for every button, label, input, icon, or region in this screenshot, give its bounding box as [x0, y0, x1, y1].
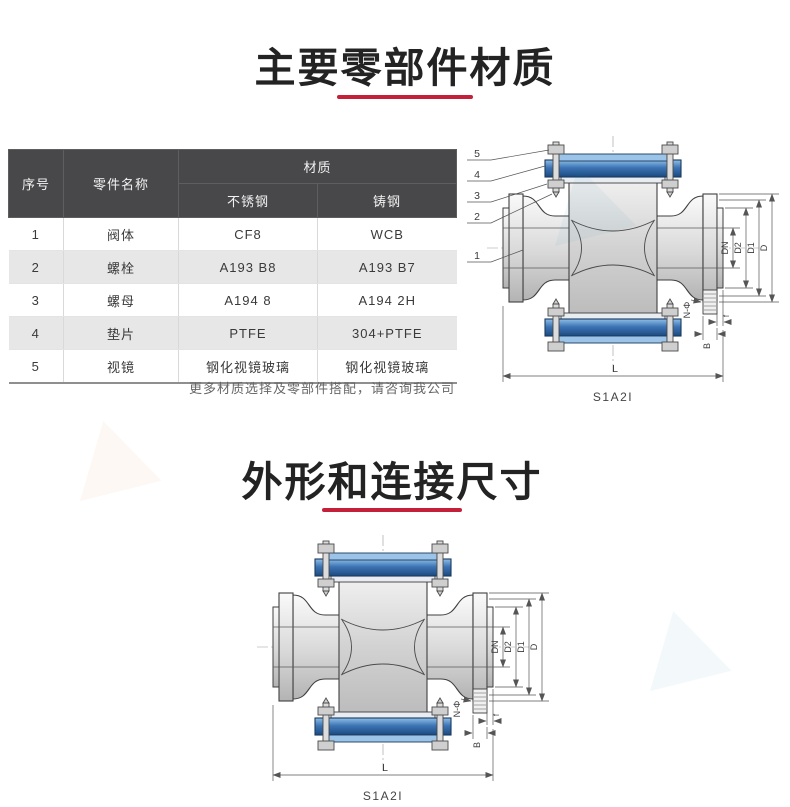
cell-name: 垫片	[64, 317, 179, 350]
table-row: 3 螺母 A194 8 A194 2H	[9, 284, 457, 317]
callout-number: 4	[474, 169, 480, 181]
cell-stainless: A194 8	[179, 284, 318, 317]
header-cell-stainless: 不锈钢	[179, 184, 318, 218]
cell-stainless: PTFE	[179, 317, 318, 350]
materials-table-container: 序号 零件名称 材质 不锈钢 铸钢 1 阀体 CF8 WCB 2 螺栓 A193…	[8, 149, 456, 384]
valve-drawing	[257, 535, 549, 781]
label-d1: D1	[746, 242, 756, 254]
cell-name: 螺栓	[64, 251, 179, 284]
label-dn: DN	[490, 641, 500, 654]
callout-number: 3	[474, 190, 480, 202]
cell-name: 螺母	[64, 284, 179, 317]
cell-no: 4	[9, 317, 64, 350]
cell-cast: 304+PTFE	[318, 317, 457, 350]
cell-no: 2	[9, 251, 64, 284]
materials-table-header: 序号 零件名称 材质 不锈钢 铸钢	[9, 150, 457, 218]
cell-cast: A193 B7	[318, 251, 457, 284]
label-b: B	[472, 742, 482, 748]
header-cell-material: 材质	[179, 150, 457, 184]
cell-no: 1	[9, 218, 64, 251]
header-cell-no: 序号	[9, 150, 64, 218]
table-row: 2 螺栓 A193 B8 A193 B7	[9, 251, 457, 284]
label-d1: D1	[516, 641, 526, 653]
label-n-phi: N-Φ	[682, 302, 692, 319]
callout-number: 5	[474, 148, 480, 160]
table-row: 4 垫片 PTFE 304+PTFE	[9, 317, 457, 350]
callout-number: 2	[474, 211, 480, 223]
section2-accent-bar	[322, 508, 462, 512]
callout-numbers: 5 4 3 2 1	[474, 148, 480, 262]
materials-table: 序号 零件名称 材质 不锈钢 铸钢 1 阀体 CF8 WCB 2 螺栓 A193…	[8, 149, 457, 384]
label-n-phi: N-Φ	[452, 701, 462, 718]
watermark-logo	[633, 601, 732, 691]
header-cell-name: 零件名称	[64, 150, 179, 218]
cell-no: 3	[9, 284, 64, 317]
cell-cast: A194 2H	[318, 284, 457, 317]
diagram1-caption: S1A2I	[593, 390, 633, 404]
section1-accent-bar	[337, 95, 473, 99]
label-d: D	[759, 244, 769, 251]
label-d: D	[529, 643, 539, 650]
label-d2: D2	[503, 641, 513, 653]
cell-stainless: CF8	[179, 218, 318, 251]
cell-name: 阀体	[64, 218, 179, 251]
label-dn: DN	[720, 242, 730, 255]
label-d2: D2	[733, 242, 743, 254]
label-l: L	[612, 363, 618, 375]
cell-cast: WCB	[318, 218, 457, 251]
diagram2-caption: S1A2I	[363, 789, 403, 803]
label-b: B	[702, 343, 712, 349]
catalog-page: { "page": { "background": "#ffffff" }, "…	[0, 0, 790, 807]
valve-drawing	[487, 136, 779, 382]
callout-number: 1	[474, 250, 480, 262]
materials-note: 更多材质选择及零部件搭配，请咨询我公司	[8, 378, 455, 397]
label-l: L	[382, 762, 388, 774]
table-row: 1 阀体 CF8 WCB	[9, 218, 457, 251]
header-cell-cast: 铸钢	[318, 184, 457, 218]
section1-title: 主要零部件材质	[0, 34, 790, 94]
cell-stainless: A193 B8	[179, 251, 318, 284]
valve-diagram-2: DN D2 D1 D N-Φ f B L S1A2I	[227, 529, 559, 807]
